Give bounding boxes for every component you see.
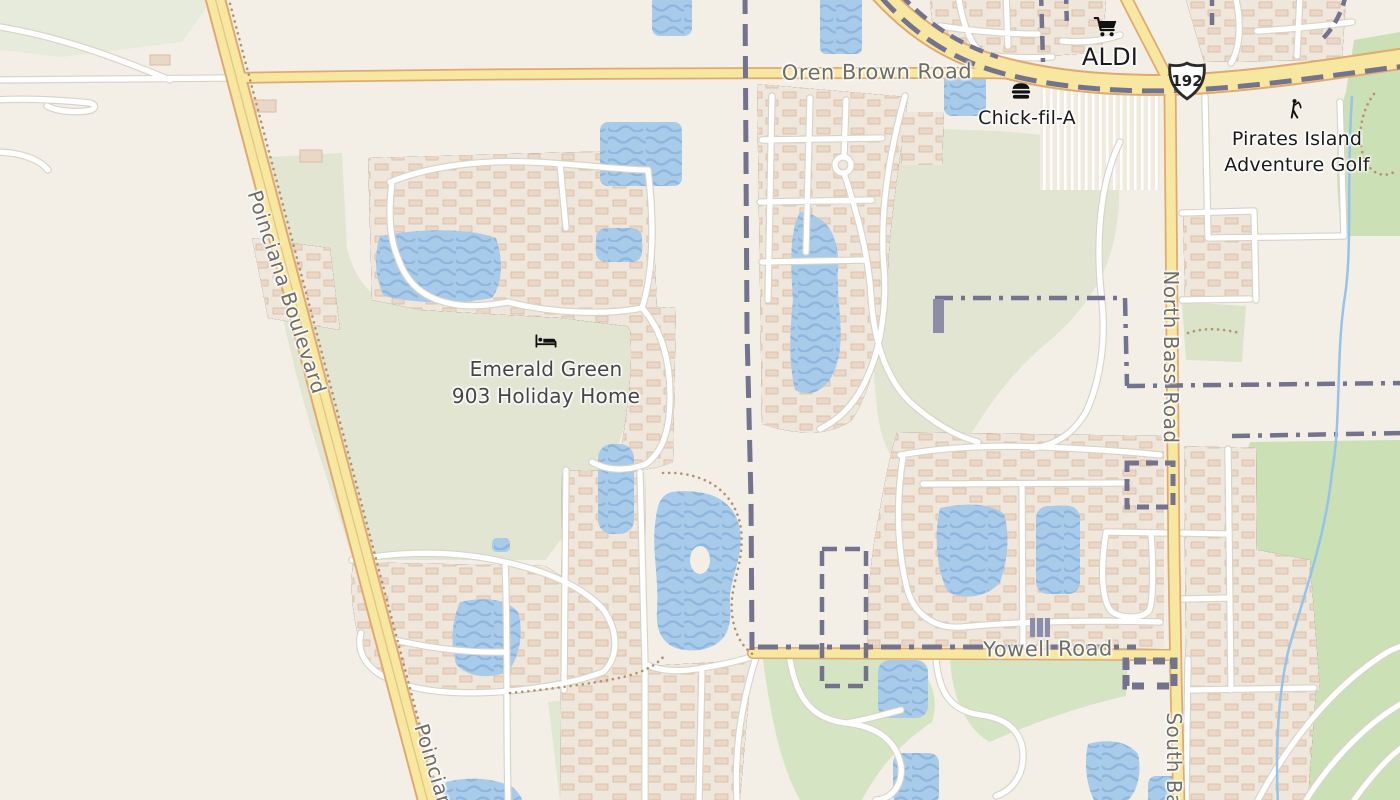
map-canvas[interactable] bbox=[0, 0, 1400, 800]
map-viewport[interactable]: Oren Brown Road Poinciana Boulevard Poin… bbox=[0, 0, 1400, 800]
pond-island bbox=[690, 546, 710, 574]
parking-lot bbox=[1040, 88, 1160, 190]
